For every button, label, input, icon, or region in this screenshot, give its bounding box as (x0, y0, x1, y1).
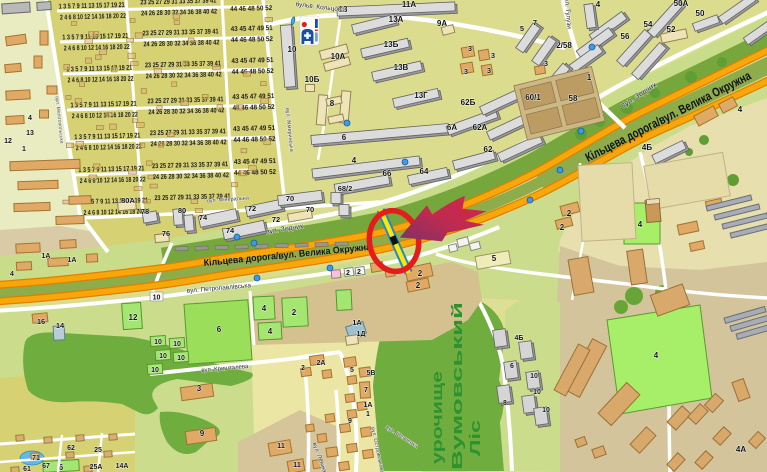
svg-text:1: 1 (366, 411, 370, 418)
svg-text:44 46 48 50 52: 44 46 48 50 52 (230, 5, 272, 13)
svg-text:25: 25 (94, 447, 102, 454)
svg-text:3: 3 (491, 51, 495, 60)
svg-text:7: 7 (533, 18, 537, 27)
svg-text:4: 4 (638, 220, 643, 229)
svg-text:11А: 11А (402, 0, 416, 9)
svg-text:14: 14 (56, 321, 65, 330)
svg-text:2: 2 (346, 270, 350, 277)
svg-text:1А: 1А (364, 402, 373, 409)
svg-text:67: 67 (42, 463, 50, 470)
svg-text:1А: 1А (42, 253, 51, 260)
svg-text:5: 5 (520, 24, 524, 33)
svg-text:10: 10 (173, 341, 181, 348)
svg-text:74: 74 (199, 213, 208, 222)
svg-text:4: 4 (654, 351, 659, 360)
svg-text:62: 62 (67, 445, 75, 452)
svg-text:3: 3 (464, 67, 468, 76)
svg-text:4Б: 4Б (642, 143, 652, 152)
svg-text:3: 3 (544, 59, 548, 68)
svg-text:43 45 47 49 51: 43 45 47 49 51 (231, 25, 273, 33)
svg-text:13Б: 13Б (384, 40, 399, 49)
svg-text:6: 6 (342, 133, 347, 142)
svg-text:61: 61 (23, 466, 31, 472)
svg-text:5: 5 (350, 367, 354, 374)
svg-text:11: 11 (277, 441, 285, 450)
svg-text:66: 66 (383, 169, 392, 178)
svg-text:58: 58 (569, 94, 578, 103)
svg-text:54: 54 (644, 20, 653, 29)
svg-text:10: 10 (542, 407, 550, 414)
svg-text:8: 8 (503, 400, 507, 407)
svg-text:80А: 80А (121, 196, 135, 205)
svg-text:10: 10 (151, 367, 159, 374)
svg-text:4: 4 (10, 271, 14, 278)
svg-text:50: 50 (696, 9, 705, 18)
svg-text:44 46 48 50 52: 44 46 48 50 52 (232, 68, 274, 76)
svg-text:1: 1 (22, 146, 26, 153)
svg-text:13: 13 (26, 130, 34, 137)
svg-text:9: 9 (348, 418, 352, 425)
svg-text:11: 11 (293, 460, 301, 469)
svg-text:2: 2 (357, 269, 361, 276)
svg-text:1А: 1А (68, 257, 77, 264)
svg-text:5В: 5В (367, 370, 376, 377)
svg-text:44 46 48 50 52: 44 46 48 50 52 (231, 36, 273, 44)
svg-text:6: 6 (510, 363, 514, 370)
svg-text:урочище: урочище (430, 371, 446, 464)
svg-text:64: 64 (420, 167, 429, 176)
svg-text:62Б: 62Б (461, 98, 476, 107)
svg-text:10А: 10А (331, 52, 346, 61)
svg-text:2: 2 (292, 308, 297, 317)
svg-text:72: 72 (248, 204, 256, 213)
svg-text:43 45 47 49 51: 43 45 47 49 51 (233, 125, 275, 133)
svg-text:1Д: 1Д (357, 331, 366, 338)
svg-text:8: 8 (330, 99, 335, 108)
svg-text:68/2: 68/2 (338, 184, 353, 193)
svg-text:3: 3 (197, 384, 202, 393)
svg-text:1: 1 (587, 73, 592, 82)
svg-text:9: 9 (200, 429, 205, 438)
svg-text:74: 74 (226, 226, 235, 235)
svg-text:12: 12 (4, 138, 12, 145)
svg-text:43 45 47 49 51: 43 45 47 49 51 (234, 158, 276, 166)
svg-text:76: 76 (162, 229, 170, 238)
svg-text:62: 62 (484, 145, 493, 154)
svg-text:13А: 13А (389, 15, 404, 24)
svg-text:71: 71 (32, 455, 40, 462)
svg-text:7: 7 (364, 387, 368, 394)
svg-text:70: 70 (306, 205, 314, 214)
svg-text:25А: 25А (90, 464, 103, 471)
svg-text:2: 2 (301, 365, 305, 372)
svg-text:4: 4 (262, 304, 267, 313)
svg-text:5: 5 (492, 254, 497, 263)
svg-text:78: 78 (141, 207, 149, 216)
svg-text:10: 10 (159, 353, 167, 360)
svg-text:43 45 47 49 51: 43 45 47 49 51 (231, 57, 273, 65)
svg-text:4: 4 (268, 327, 273, 336)
svg-text:13В: 13В (394, 63, 409, 72)
svg-text:10: 10 (154, 339, 162, 346)
svg-text:62А: 62А (473, 123, 488, 132)
svg-text:3: 3 (468, 44, 472, 53)
svg-text:4: 4 (596, 0, 601, 9)
svg-text:56: 56 (621, 32, 630, 41)
svg-text:70: 70 (286, 194, 294, 203)
svg-text:10Б: 10Б (305, 75, 320, 84)
svg-text:2А: 2А (317, 360, 326, 367)
svg-text:16: 16 (37, 317, 45, 326)
svg-text:2: 2 (560, 223, 565, 232)
svg-text:4: 4 (28, 115, 32, 122)
svg-text:80: 80 (178, 206, 186, 215)
svg-text:52: 52 (667, 25, 676, 34)
svg-text:10: 10 (177, 355, 185, 362)
svg-text:10: 10 (288, 45, 297, 54)
svg-text:10: 10 (533, 389, 541, 396)
svg-text:6А: 6А (447, 123, 457, 132)
svg-text:4А: 4А (736, 445, 746, 454)
svg-text:4: 4 (738, 105, 743, 114)
svg-text:Вумовський: Вумовський (450, 302, 466, 470)
svg-text:10: 10 (153, 295, 161, 302)
svg-text:6: 6 (217, 325, 222, 334)
svg-text:72: 72 (272, 215, 280, 224)
svg-text:60/1: 60/1 (525, 93, 541, 102)
svg-text:Ліс: Ліс (468, 420, 484, 456)
svg-text:13Г: 13Г (414, 91, 428, 100)
svg-text:14А: 14А (116, 463, 129, 470)
svg-text:4Б: 4Б (515, 335, 524, 342)
svg-text:50А: 50А (674, 0, 689, 8)
svg-text:1А: 1А (352, 318, 362, 327)
svg-text:3: 3 (487, 66, 491, 75)
svg-text:9А: 9А (437, 19, 447, 28)
svg-text:12: 12 (129, 313, 138, 322)
svg-text:4: 4 (352, 156, 357, 165)
svg-text:2: 2 (418, 269, 423, 278)
svg-text:10: 10 (530, 373, 538, 380)
svg-text:2: 2 (416, 281, 421, 290)
